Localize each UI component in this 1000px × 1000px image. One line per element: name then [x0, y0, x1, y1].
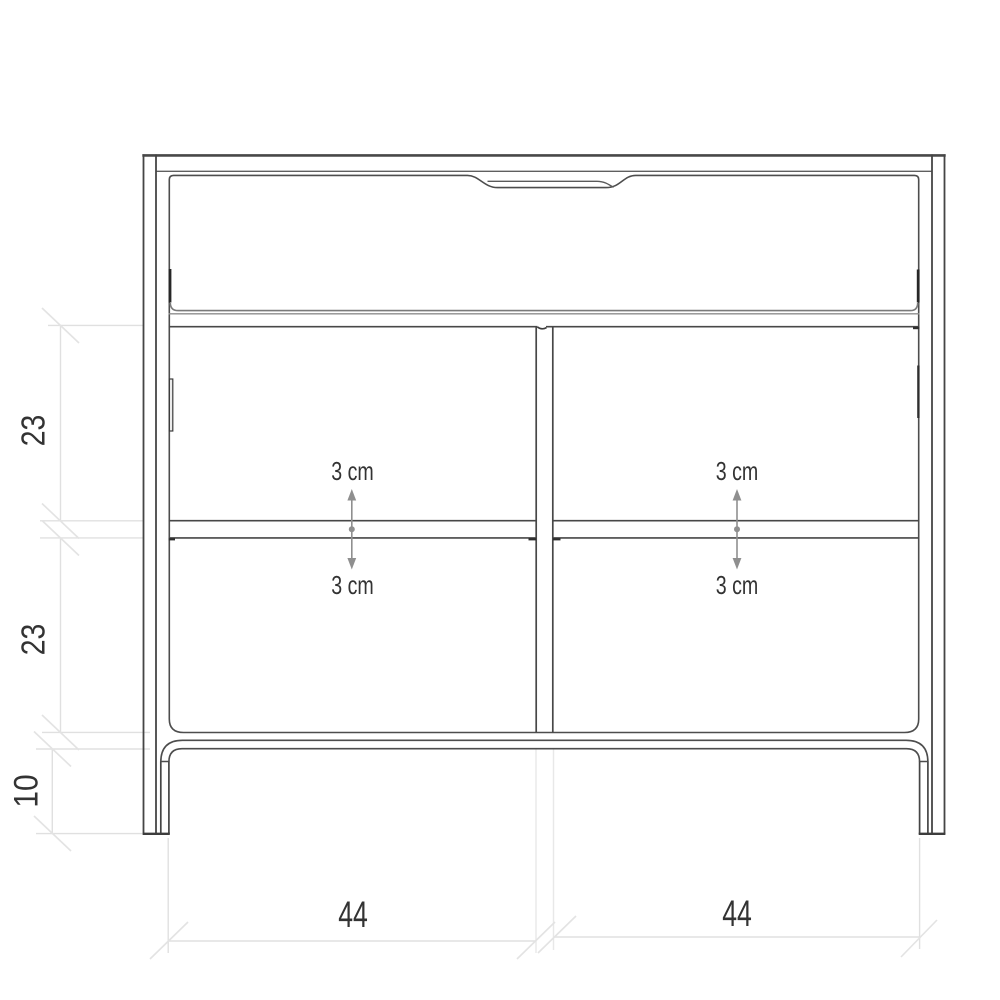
svg-text:44: 44: [338, 894, 368, 935]
svg-text:3 cm: 3 cm: [331, 570, 374, 599]
svg-text:3 cm: 3 cm: [716, 456, 759, 485]
svg-text:3 cm: 3 cm: [716, 570, 759, 599]
svg-text:23: 23: [14, 624, 52, 656]
svg-text:3 cm: 3 cm: [331, 456, 374, 485]
svg-text:44: 44: [722, 893, 752, 934]
svg-text:10: 10: [7, 774, 45, 807]
svg-text:23: 23: [14, 415, 52, 447]
